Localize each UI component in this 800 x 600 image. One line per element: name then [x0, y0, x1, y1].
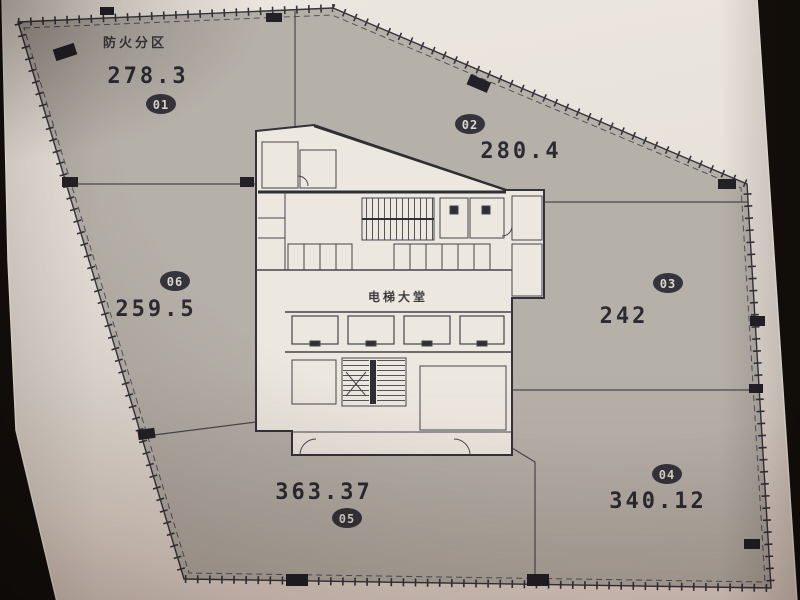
- elevator-door-mark: [422, 341, 432, 346]
- elevator-lobby-label: 电梯大堂: [368, 289, 428, 304]
- floor-plan-photo: 电梯大堂 防火分区 278.3 01 02 280.4 03 242 04 34…: [0, 0, 800, 600]
- column: [749, 384, 763, 393]
- zone-area-value: 280.4: [480, 139, 561, 164]
- stair-stringer: [370, 360, 376, 404]
- column: [527, 574, 549, 586]
- column: [266, 13, 282, 22]
- zone-badge-number: 02: [462, 118, 478, 132]
- elevator-door-mark: [366, 341, 376, 346]
- zone-area-value: 278.3: [107, 64, 188, 89]
- zone-area-value: 363.37: [275, 480, 372, 505]
- column: [240, 177, 254, 187]
- elevator-door-mark: [310, 341, 320, 346]
- column: [744, 539, 760, 549]
- shaft-mark: [450, 206, 458, 214]
- stair-flight: [377, 359, 405, 405]
- column: [62, 177, 78, 187]
- zone-badge-number: 01: [153, 98, 169, 112]
- shaft-mark: [482, 206, 490, 214]
- column: [750, 316, 765, 326]
- floor-plan-svg: 电梯大堂 防火分区 278.3 01 02 280.4 03 242 04 34…: [0, 0, 800, 600]
- elevator-door-mark: [477, 341, 487, 346]
- zone-badge-number: 03: [660, 277, 676, 291]
- zone-area-value: 242: [600, 304, 649, 329]
- column: [100, 7, 114, 15]
- zone-area-value: 340.12: [609, 489, 706, 514]
- column: [718, 179, 736, 189]
- zone-badge-number: 04: [659, 468, 675, 482]
- zone-area-value: 259.5: [115, 297, 196, 322]
- column: [286, 574, 308, 586]
- zone-badge-number: 05: [339, 512, 355, 526]
- stair-flight: [343, 359, 369, 405]
- zone-badge-number: 06: [167, 275, 183, 289]
- plan-title: 防火分区: [103, 35, 167, 51]
